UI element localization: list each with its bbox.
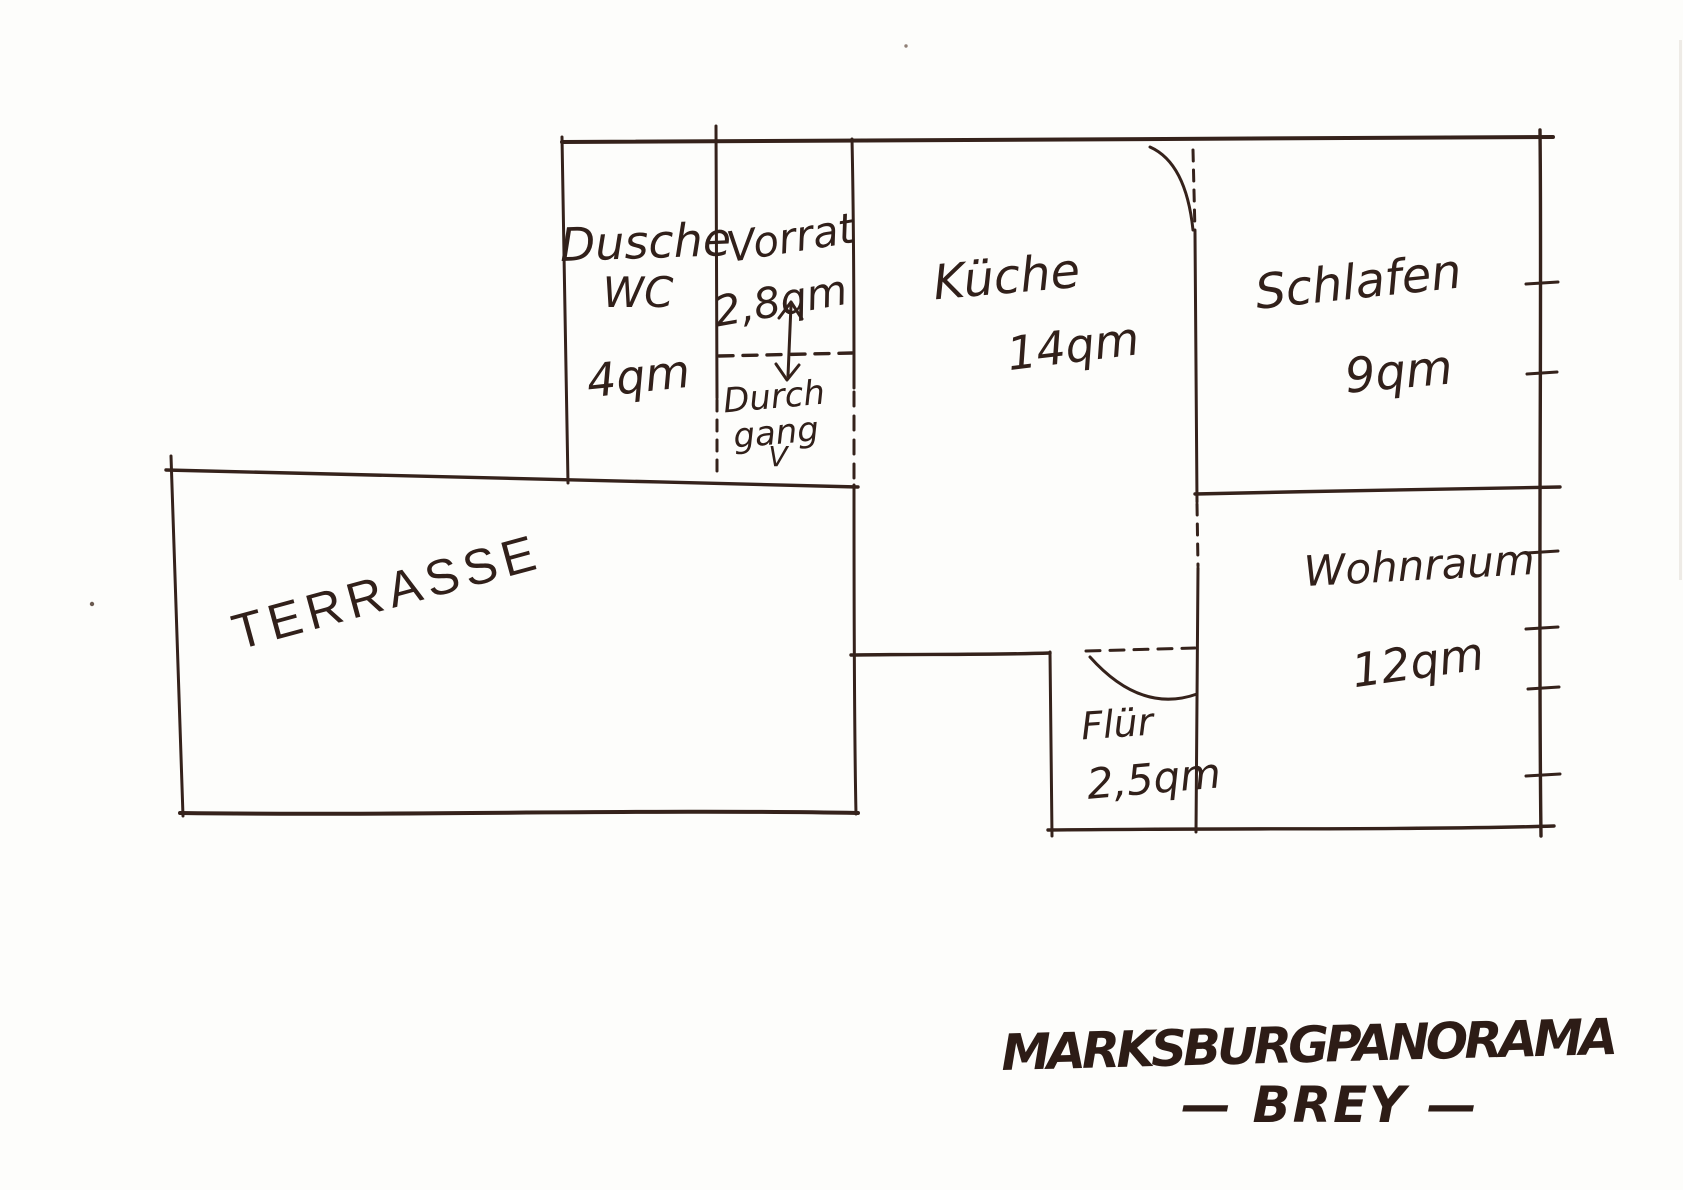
dimension-tick-5 [1528,687,1559,689]
area-label-wohnraum: 12qm [1348,626,1487,698]
area-label-vorrat: 2,8qm [710,265,851,337]
paper-speck-2 [904,44,907,47]
wall-kueche-schlafen-door-dashed [1193,150,1195,232]
door-arc-kueche [1150,147,1193,230]
caption-subtitle: — BREY — [1181,1076,1479,1134]
dimension-tick-1 [1526,282,1558,284]
area-label-dusche: 4qm [584,344,692,409]
wall-outline-right [1540,130,1541,836]
wall-kueche-schlafen-divider [1195,233,1197,502]
area-label-schlafen: 9qm [1342,339,1454,404]
floor-plan-drawing: Dusche WC 4qm Vorrat 2,8qm Durch gang V … [0,0,1683,1190]
wall-kueche-bottom-step [851,653,1050,655]
caption-title: MARKSBURGPANORAMA [1001,1008,1615,1082]
scan-edge-shadow [1679,40,1682,580]
scanned-floor-plan-page: Dusche WC 4qm Vorrat 2,8qm Durch gang V … [0,0,1683,1190]
room-label-terrasse: TERRASSE [226,523,547,660]
wall-outline-bottom [1048,826,1554,830]
wall-kueche-wohnraum-door-dashed [1197,504,1198,566]
wall-vorrat-durchgang-dashed [719,353,852,356]
room-label-kueche: Küche [931,243,1082,312]
area-label-kueche: 14qm [1004,311,1142,381]
wall-flur-door-dashed [1086,648,1195,651]
room-label-flur: Flür [1080,699,1157,748]
room-label-dusche-line2: WC [603,268,675,317]
wall-flur-left [1050,652,1052,836]
wall-outline-top [562,137,1553,142]
wall-schlafen-wohnraum-divider [1195,487,1560,494]
area-label-flur: 2,5qm [1085,748,1223,809]
door-arc-flur [1090,657,1197,699]
wall-kueche-west-upper [852,139,854,388]
wall-terrasse-bottom [180,812,858,814]
room-label-wohnraum: Wohnraum [1303,535,1536,596]
room-label-schlafen: Schlafen [1253,243,1465,320]
wall-terrasse-top [166,470,858,487]
wall-dusche-left [562,137,568,483]
dimension-tick-6 [1526,774,1560,776]
dimension-tick-2 [1527,372,1557,374]
durchgang-direction-mark: V [768,440,789,473]
wall-terrasse-east [854,485,856,814]
dimension-tick-4 [1526,627,1558,629]
wall-terrasse-left [171,456,183,816]
room-label-dusche-line1: Dusche [559,212,732,272]
paper-speck-1 [90,602,94,606]
room-label-vorrat: Vorrat [723,203,859,272]
